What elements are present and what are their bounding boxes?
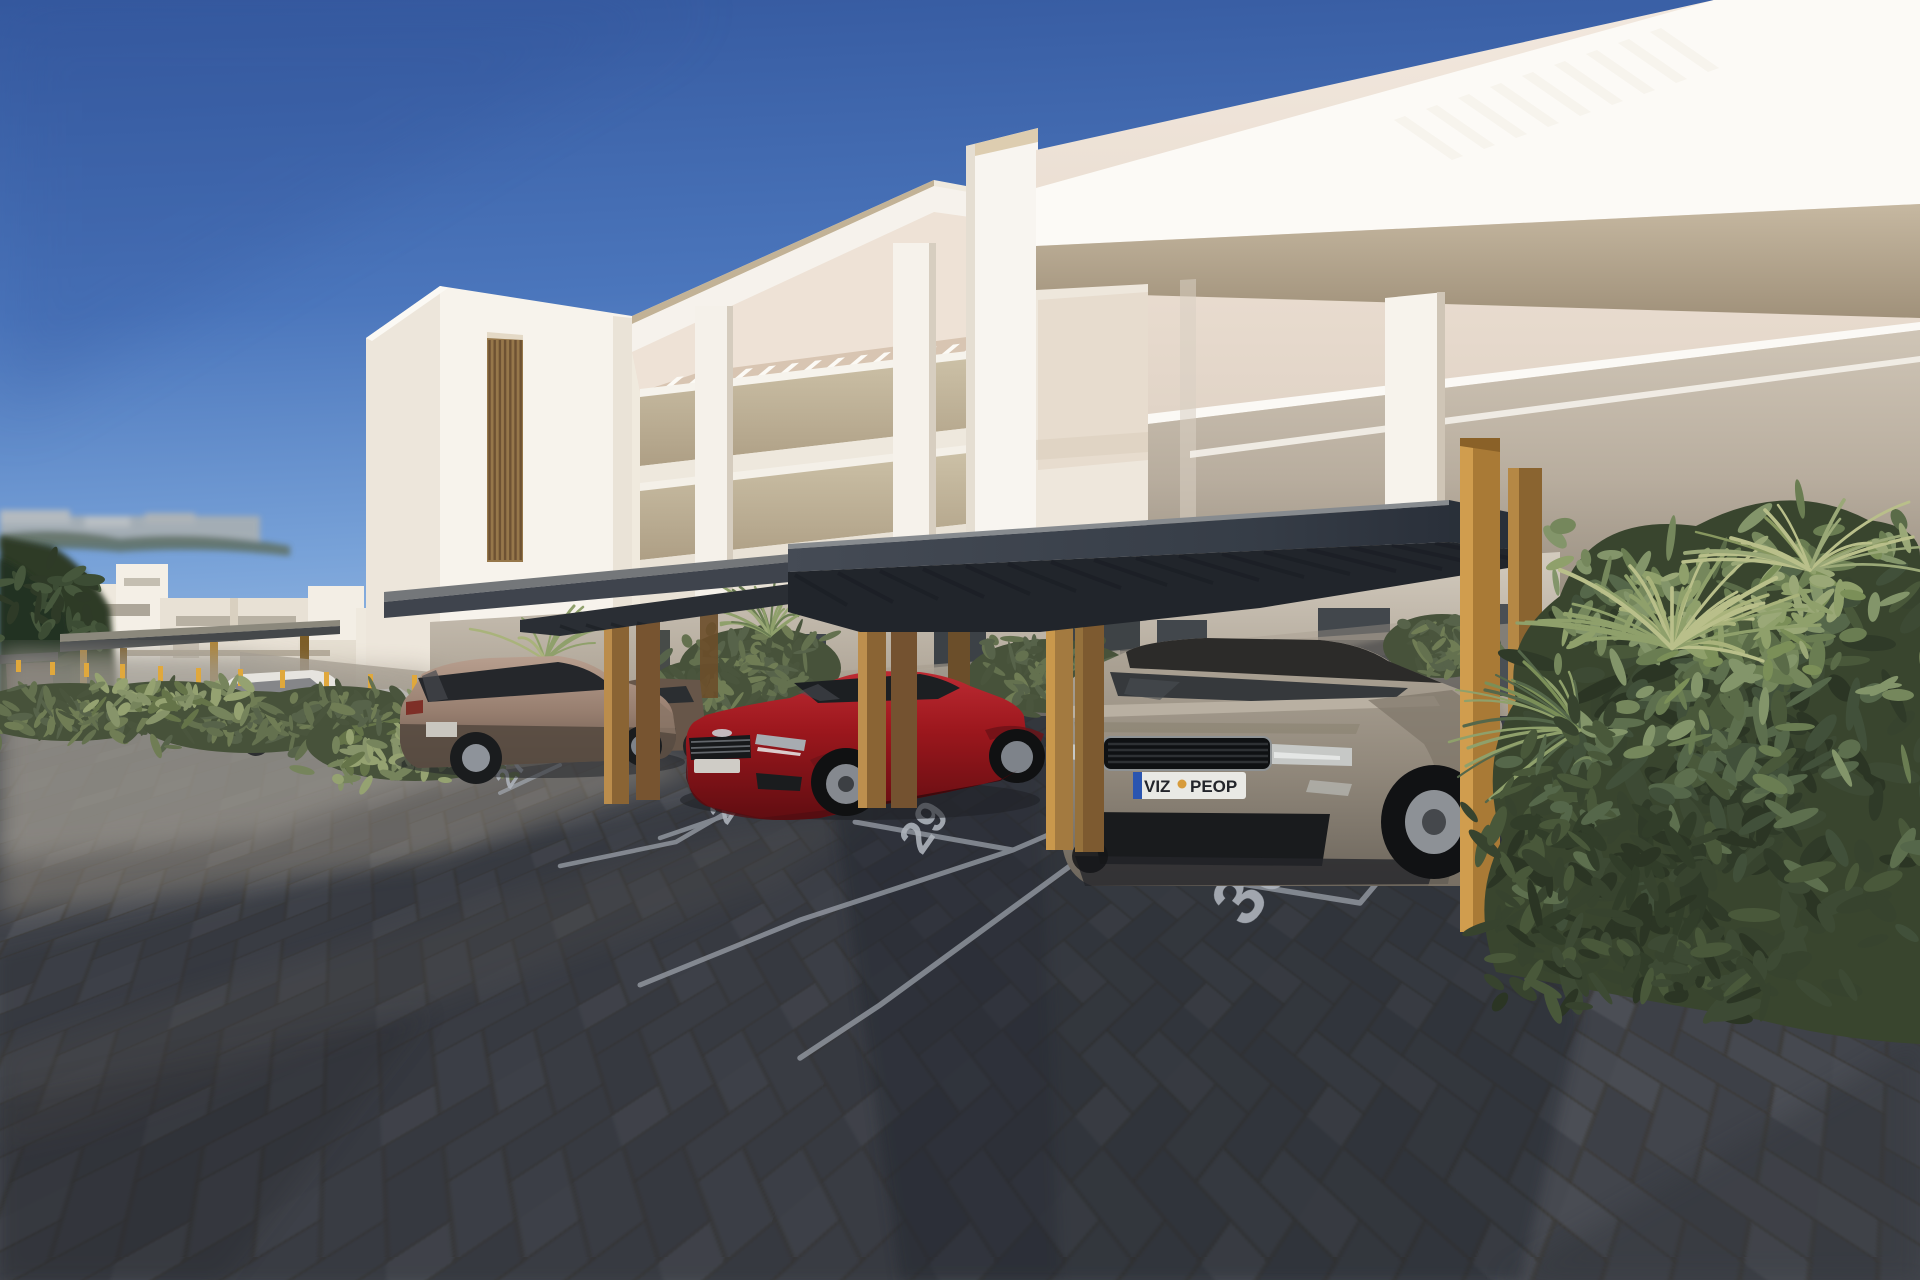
svg-text:VIZ: VIZ [1144, 777, 1170, 796]
svg-text:PEOP: PEOP [1190, 777, 1237, 796]
